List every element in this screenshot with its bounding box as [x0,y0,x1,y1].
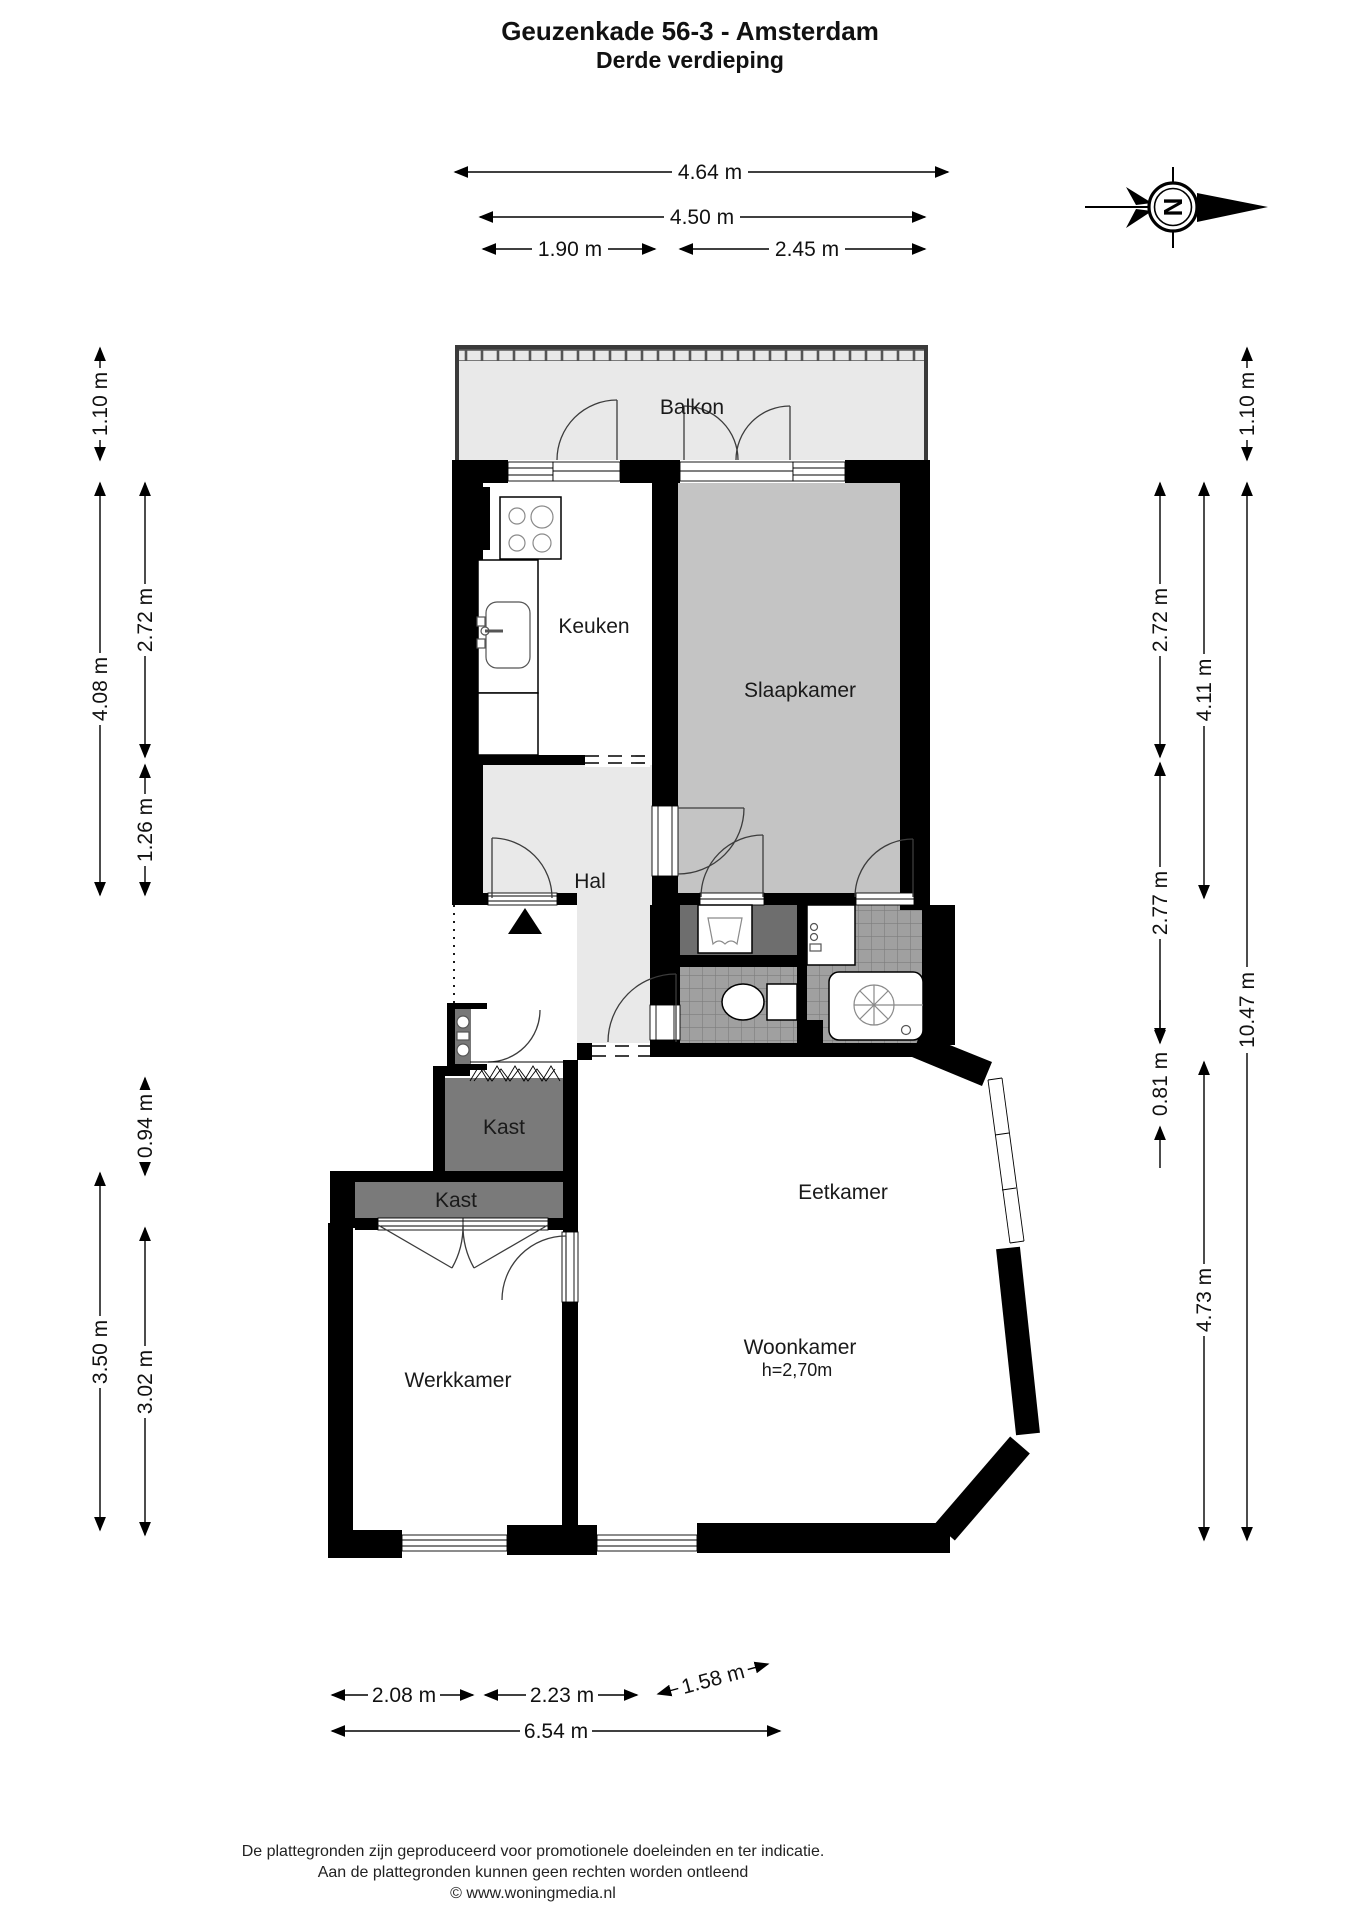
bay-window [988,1078,1024,1243]
wall [652,483,678,765]
balcony-crenellation [459,349,924,361]
wall [452,460,508,483]
meter-icon [457,1032,469,1040]
dimension: 4.11 m [1193,483,1216,898]
room-label-woonkamer: Woonkamer [744,1336,857,1359]
bay-window-cap [1010,1241,1024,1243]
wall [764,893,856,905]
room-label-keuken: Keuken [558,615,629,638]
dimension: 0.81 m [1149,1000,1172,1168]
dimension-label: 3.50 m [89,1320,112,1384]
title-block: Geuzenkade 56-3 - Amsterdam Derde verdie… [501,16,879,73]
dimension: 2.45 m [680,238,925,261]
room-label-woonkamer-height: h=2,70m [762,1360,833,1380]
room-label-slaapkamer: Slaapkamer [744,679,856,702]
dimension: 4.08 m [89,483,112,895]
dimension: 1.58 m [658,1659,768,1700]
dimension: 1.90 m [483,238,655,261]
compass: N [1085,167,1268,248]
bay-window-mullion [995,1133,1009,1135]
dimensions-right: 1.10 m 2.72 m 4.11 m 2.77 m 0.81 m 10.47… [1149,348,1259,1540]
dimension-label: 4.64 m [678,161,742,184]
duct [477,487,490,550]
dimensions-left: 1.10 m 2.72 m 4.08 m 1.26 m 0.94 m 3.50 … [89,348,157,1535]
page-subtitle: Derde verdieping [596,47,784,73]
dimension-label: 0.94 m [134,1094,157,1158]
dimension: 1.10 m [89,348,112,460]
window [508,462,553,481]
closet-door-leaf [378,1225,452,1268]
washbasin-icon [698,905,752,953]
wall [922,905,955,1045]
wall [697,1523,950,1553]
wall [328,1223,353,1558]
bay-window-cap [988,1078,1002,1080]
bay-window-line [988,1080,1010,1243]
wall [433,1066,445,1178]
room-label-kast-boven: Kast [483,1116,525,1139]
dimension-label: 2.08 m [372,1684,436,1707]
dimension: 2.72 m [1149,483,1172,757]
room-label-hal: Hal [574,870,606,893]
entrance-arrow [508,908,542,934]
closet-door-swing [463,1225,474,1268]
dimension: 3.02 m [134,1228,157,1535]
closet-door-swing [452,1225,463,1268]
wall [797,903,807,1043]
wall [652,765,678,808]
dimension-label: 2.77 m [1149,871,1172,935]
dimension: 2.08 m [332,1684,473,1707]
window [402,1535,507,1551]
dimension-label: 1.90 m [538,238,602,261]
dimension-label: 2.72 m [134,588,157,652]
dimension-label: 3.02 m [134,1350,157,1414]
wall [900,460,930,910]
dimension-label: 2.23 m [530,1684,594,1707]
footer-disclaimer-line1: De plattegronden zijn geproduceerd voor … [242,1843,825,1860]
dimensions-bottom: 2.08 m 2.23 m 1.58 m 6.54 m [332,1659,780,1743]
dimension-label: 2.72 m [1149,588,1172,652]
dimension: 4.73 m [1193,1062,1216,1540]
wall [562,1300,578,1555]
wall [548,1218,563,1230]
compass-north-label: N [1158,198,1188,217]
dimension-label: 4.73 m [1193,1268,1216,1332]
meter-cupboard-door-swing [488,1010,540,1062]
dimension: 3.50 m [89,1173,112,1530]
dimension: 0.94 m [134,1078,157,1175]
dimension-label: 4.11 m [1193,659,1216,722]
bay-window-mullion [1002,1188,1016,1190]
room-label-kast-onder: Kast [435,1189,477,1212]
window [597,1535,697,1551]
wall [678,893,700,905]
floorplan-page: Geuzenkade 56-3 - Amsterdam Derde verdie… [0,0,1358,1920]
wall [652,874,678,905]
wall [577,1043,592,1060]
wall [330,1171,563,1182]
open-passage [585,753,650,767]
balcony-railing-top [455,345,928,349]
dimension: 1.26 m [134,765,157,895]
dimension: 4.64 m [455,161,948,184]
dimension-label: 4.50 m [670,206,734,229]
washing-machine-icon [807,905,855,965]
meter-cupboard [447,1003,487,1070]
dimension-label: 1.10 m [1236,372,1259,436]
dimension: 4.50 m [480,206,925,229]
meter-icon [457,1044,469,1056]
balcony-railing-right [924,345,928,460]
dimension: 1.10 m [1236,348,1259,460]
wall [620,460,680,483]
stove-icon [500,497,561,559]
dimension-label: 0.81 m [1149,1052,1172,1116]
dimension-label: 4.08 m [89,657,112,721]
wall [507,1525,597,1555]
wall [557,893,577,905]
dimension-label: 1.58 m [679,1660,747,1699]
wall [452,893,488,905]
footer-copyright: © www.woningmedia.nl [450,1885,616,1902]
door-frame [652,806,678,876]
dimension-label: 6.54 m [524,1720,588,1743]
shower-icon [829,972,923,1040]
wall [330,1171,355,1228]
door-frame [562,1232,578,1302]
window [793,462,845,481]
wall [807,1020,823,1043]
room-label-balkon: Balkon [660,396,724,419]
dimension: 6.54 m [332,1720,780,1743]
meter-icon [457,1016,469,1028]
wall [563,1060,578,1232]
door-frame [488,893,557,905]
bay-diagonal-wall [945,1445,1020,1532]
dimension-label: 10.47 m [1236,972,1259,1048]
bay-wall [1008,1248,1028,1434]
dimension: 2.72 m [134,483,157,757]
closet-door-leaf [474,1225,548,1268]
bay-window-line [1002,1078,1024,1241]
balcony-railing-left [455,345,459,460]
wall [328,1530,402,1558]
page-title: Geuzenkade 56-3 - Amsterdam [501,16,879,46]
dimensions-top: 4.64 m 4.50 m 1.90 m 2.45 m [455,161,948,261]
kitchen-sink-icon [477,560,538,755]
dimension: 10.47 m [1236,483,1259,1540]
wall [650,1043,940,1057]
floorplan-canvas: Geuzenkade 56-3 - Amsterdam Derde verdie… [0,0,1358,1920]
wall [355,1218,378,1230]
footer: De plattegronden zijn geproduceerd voor … [242,1843,825,1902]
compass-north-arrow [1197,193,1268,222]
wall [672,955,807,967]
french-door-threshold [680,462,793,481]
balcony-door-threshold [553,462,620,481]
dimension-label: 2.45 m [775,238,839,261]
dimension: 2.23 m [485,1684,637,1707]
wall [914,893,930,905]
room-label-eetkamer: Eetkamer [798,1181,888,1204]
dimension-label: 1.26 m [134,798,157,862]
room-label-werkkamer: Werkkamer [405,1369,512,1392]
dimension-label: 1.10 m [89,372,112,436]
wall [483,755,585,765]
footer-disclaimer-line2: Aan de plattegronden kunnen geen rechten… [318,1864,749,1881]
